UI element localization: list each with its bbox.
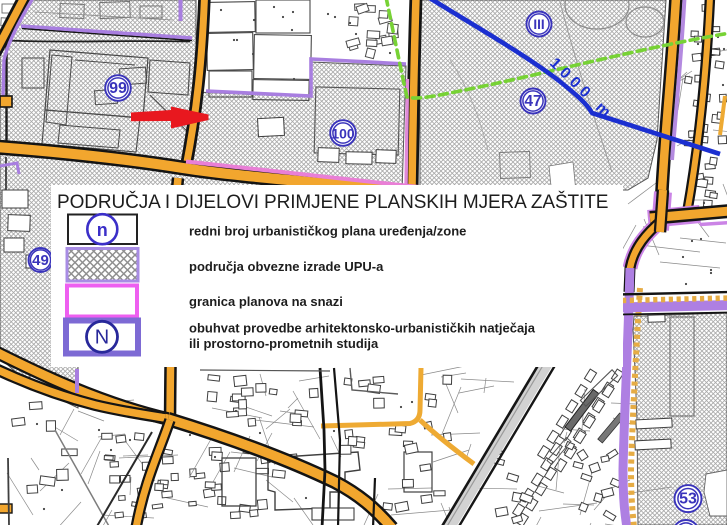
svg-text:53: 53 <box>679 491 697 508</box>
svg-text:III: III <box>533 17 544 32</box>
svg-text:ili prostorno-prometnih studij: ili prostorno-prometnih studija <box>189 336 379 351</box>
svg-text:49: 49 <box>32 252 49 269</box>
svg-text:područja obvezne izrade UPU-a: područja obvezne izrade UPU-a <box>189 259 384 274</box>
svg-text:99: 99 <box>109 80 127 97</box>
svg-text:100: 100 <box>331 126 355 142</box>
svg-text:granica planova na snazi: granica planova na snazi <box>189 294 343 309</box>
svg-text:47: 47 <box>524 93 541 110</box>
svg-text:PODRUČJA I DIJELOVI PRIMJENE P: PODRUČJA I DIJELOVI PRIMJENE PLANSKIH MJ… <box>57 191 608 213</box>
svg-text:obuhvat provedbe arhitektonsko: obuhvat provedbe arhitektonsko-urbanisti… <box>189 320 536 335</box>
svg-text:N: N <box>95 327 109 349</box>
svg-text:redni broj urbanističkog plana: redni broj urbanističkog plana uređenja/… <box>189 224 466 239</box>
svg-text:n: n <box>97 220 108 240</box>
